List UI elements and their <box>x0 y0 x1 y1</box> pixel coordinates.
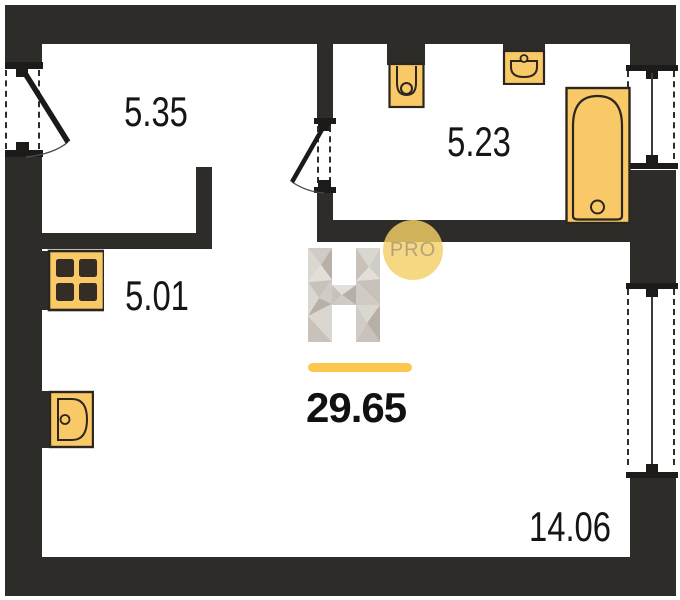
logo-accent-bar <box>308 363 412 372</box>
bathroom-door-icon <box>285 118 340 198</box>
total-area-label: 29.65 <box>306 384 406 432</box>
window-living-nub-bottom <box>646 464 658 472</box>
wall-right-middle <box>630 170 676 283</box>
washbasin-icon <box>501 41 547 85</box>
bathtub-icon <box>565 86 632 225</box>
wall-right-upper <box>630 5 676 65</box>
floor-plan: PRO 29.65 5.35 5.23 5.01 14.06 <box>0 0 680 600</box>
window-bathroom-mullion <box>651 73 653 157</box>
wall-right-lower <box>630 478 676 596</box>
wall-bathroom-left-upper <box>317 44 333 118</box>
room-label-hallway: 5.35 <box>124 88 188 136</box>
entrance-door-icon <box>0 58 120 163</box>
room-label-kitchen: 5.01 <box>125 272 189 320</box>
wall-left-upper <box>5 5 42 62</box>
wall-left-lower <box>5 157 42 596</box>
window-living-nub-top <box>646 289 658 297</box>
wall-bottom <box>5 557 676 596</box>
window-living-sill-bottom <box>626 472 678 478</box>
pro-badge-label: PRO <box>390 239 436 262</box>
room-label-bathroom: 5.23 <box>447 118 511 166</box>
room-label-living-room: 14.06 <box>529 503 611 551</box>
pro-badge: PRO <box>383 220 443 280</box>
window-bathroom-dash-outer <box>673 71 675 159</box>
window-living-dash-outer <box>673 289 675 465</box>
wall-partition-horizontal <box>42 233 212 249</box>
logo-h-icon <box>308 248 380 342</box>
toilet-icon <box>385 43 427 109</box>
stove-icon <box>42 248 104 312</box>
window-bathroom-nub-bottom <box>646 155 658 163</box>
window-living-dash-inner <box>627 289 629 465</box>
kitchen-sink-icon <box>42 388 94 450</box>
window-living-mullion <box>651 297 653 465</box>
wall-top <box>5 5 676 44</box>
window-bathroom-sill-bottom <box>626 163 678 169</box>
wall-partition-vertical <box>196 167 212 249</box>
